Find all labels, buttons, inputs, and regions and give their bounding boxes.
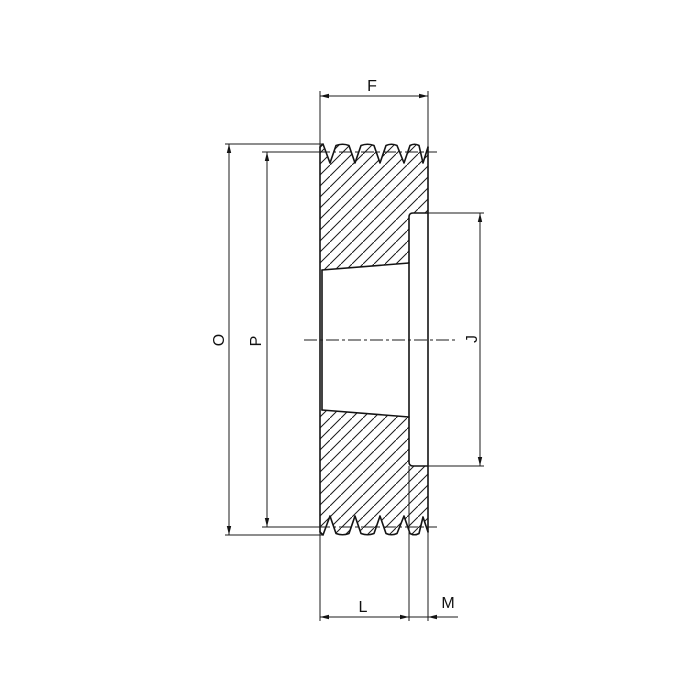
l-arrow-right <box>400 615 409 619</box>
dimension-P-label: P <box>248 336 265 347</box>
dimension-J-label: J <box>464 335 481 343</box>
dimension-F: F <box>320 78 428 147</box>
p-arrow-top <box>265 152 269 161</box>
dimension-O-label: O <box>211 334 228 346</box>
l-arrow-left <box>320 615 329 619</box>
j-arrow-bottom <box>478 457 482 466</box>
dimension-F-label: F <box>367 78 377 95</box>
dimension-M-label: M <box>441 595 454 612</box>
j-arrow-top <box>478 213 482 222</box>
hatch-area-bottom <box>320 410 428 535</box>
m-arrow-right <box>428 615 437 619</box>
o-arrow-bottom <box>227 526 231 535</box>
f-arrow-left <box>320 94 329 98</box>
pulley-technical-drawing: F O P J L M <box>0 0 700 700</box>
dimension-L-label: L <box>359 599 368 616</box>
p-arrow-bottom <box>265 518 269 527</box>
drawing-canvas: F O P J L M <box>0 0 700 700</box>
hatch-area-top <box>320 144 428 270</box>
o-arrow-top <box>227 144 231 153</box>
f-arrow-right <box>419 94 428 98</box>
